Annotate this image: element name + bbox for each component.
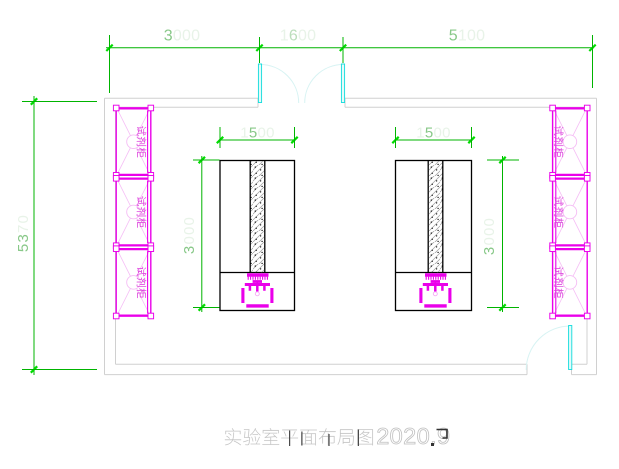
svg-text:3000: 3000 <box>481 217 498 255</box>
svg-text:5100: 5100 <box>449 28 485 45</box>
svg-text:2020.9: 2020.9 <box>376 423 450 449</box>
svg-text:3000: 3000 <box>164 28 200 45</box>
svg-text:1500: 1500 <box>416 125 451 142</box>
svg-text:5370: 5370 <box>15 214 32 252</box>
svg-text:1500: 1500 <box>240 125 275 142</box>
svg-text:1600: 1600 <box>280 28 316 45</box>
svg-text:3000: 3000 <box>181 216 198 254</box>
